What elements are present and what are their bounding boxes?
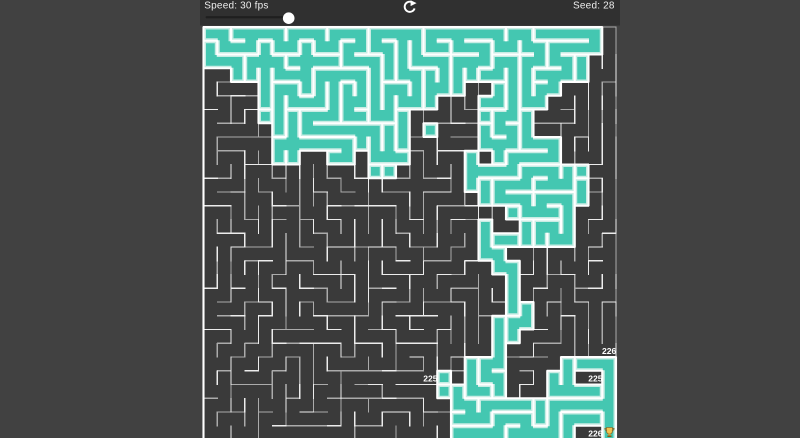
svg-text:225: 225 [423,374,438,384]
svg-text:Speed: 30 fps: Speed: 30 fps [204,0,268,11]
svg-text:226: 226 [602,346,617,356]
svg-text:226: 226 [588,429,603,438]
svg-text:Seed: 28: Seed: 28 [573,0,615,11]
svg-text:225: 225 [588,374,603,384]
